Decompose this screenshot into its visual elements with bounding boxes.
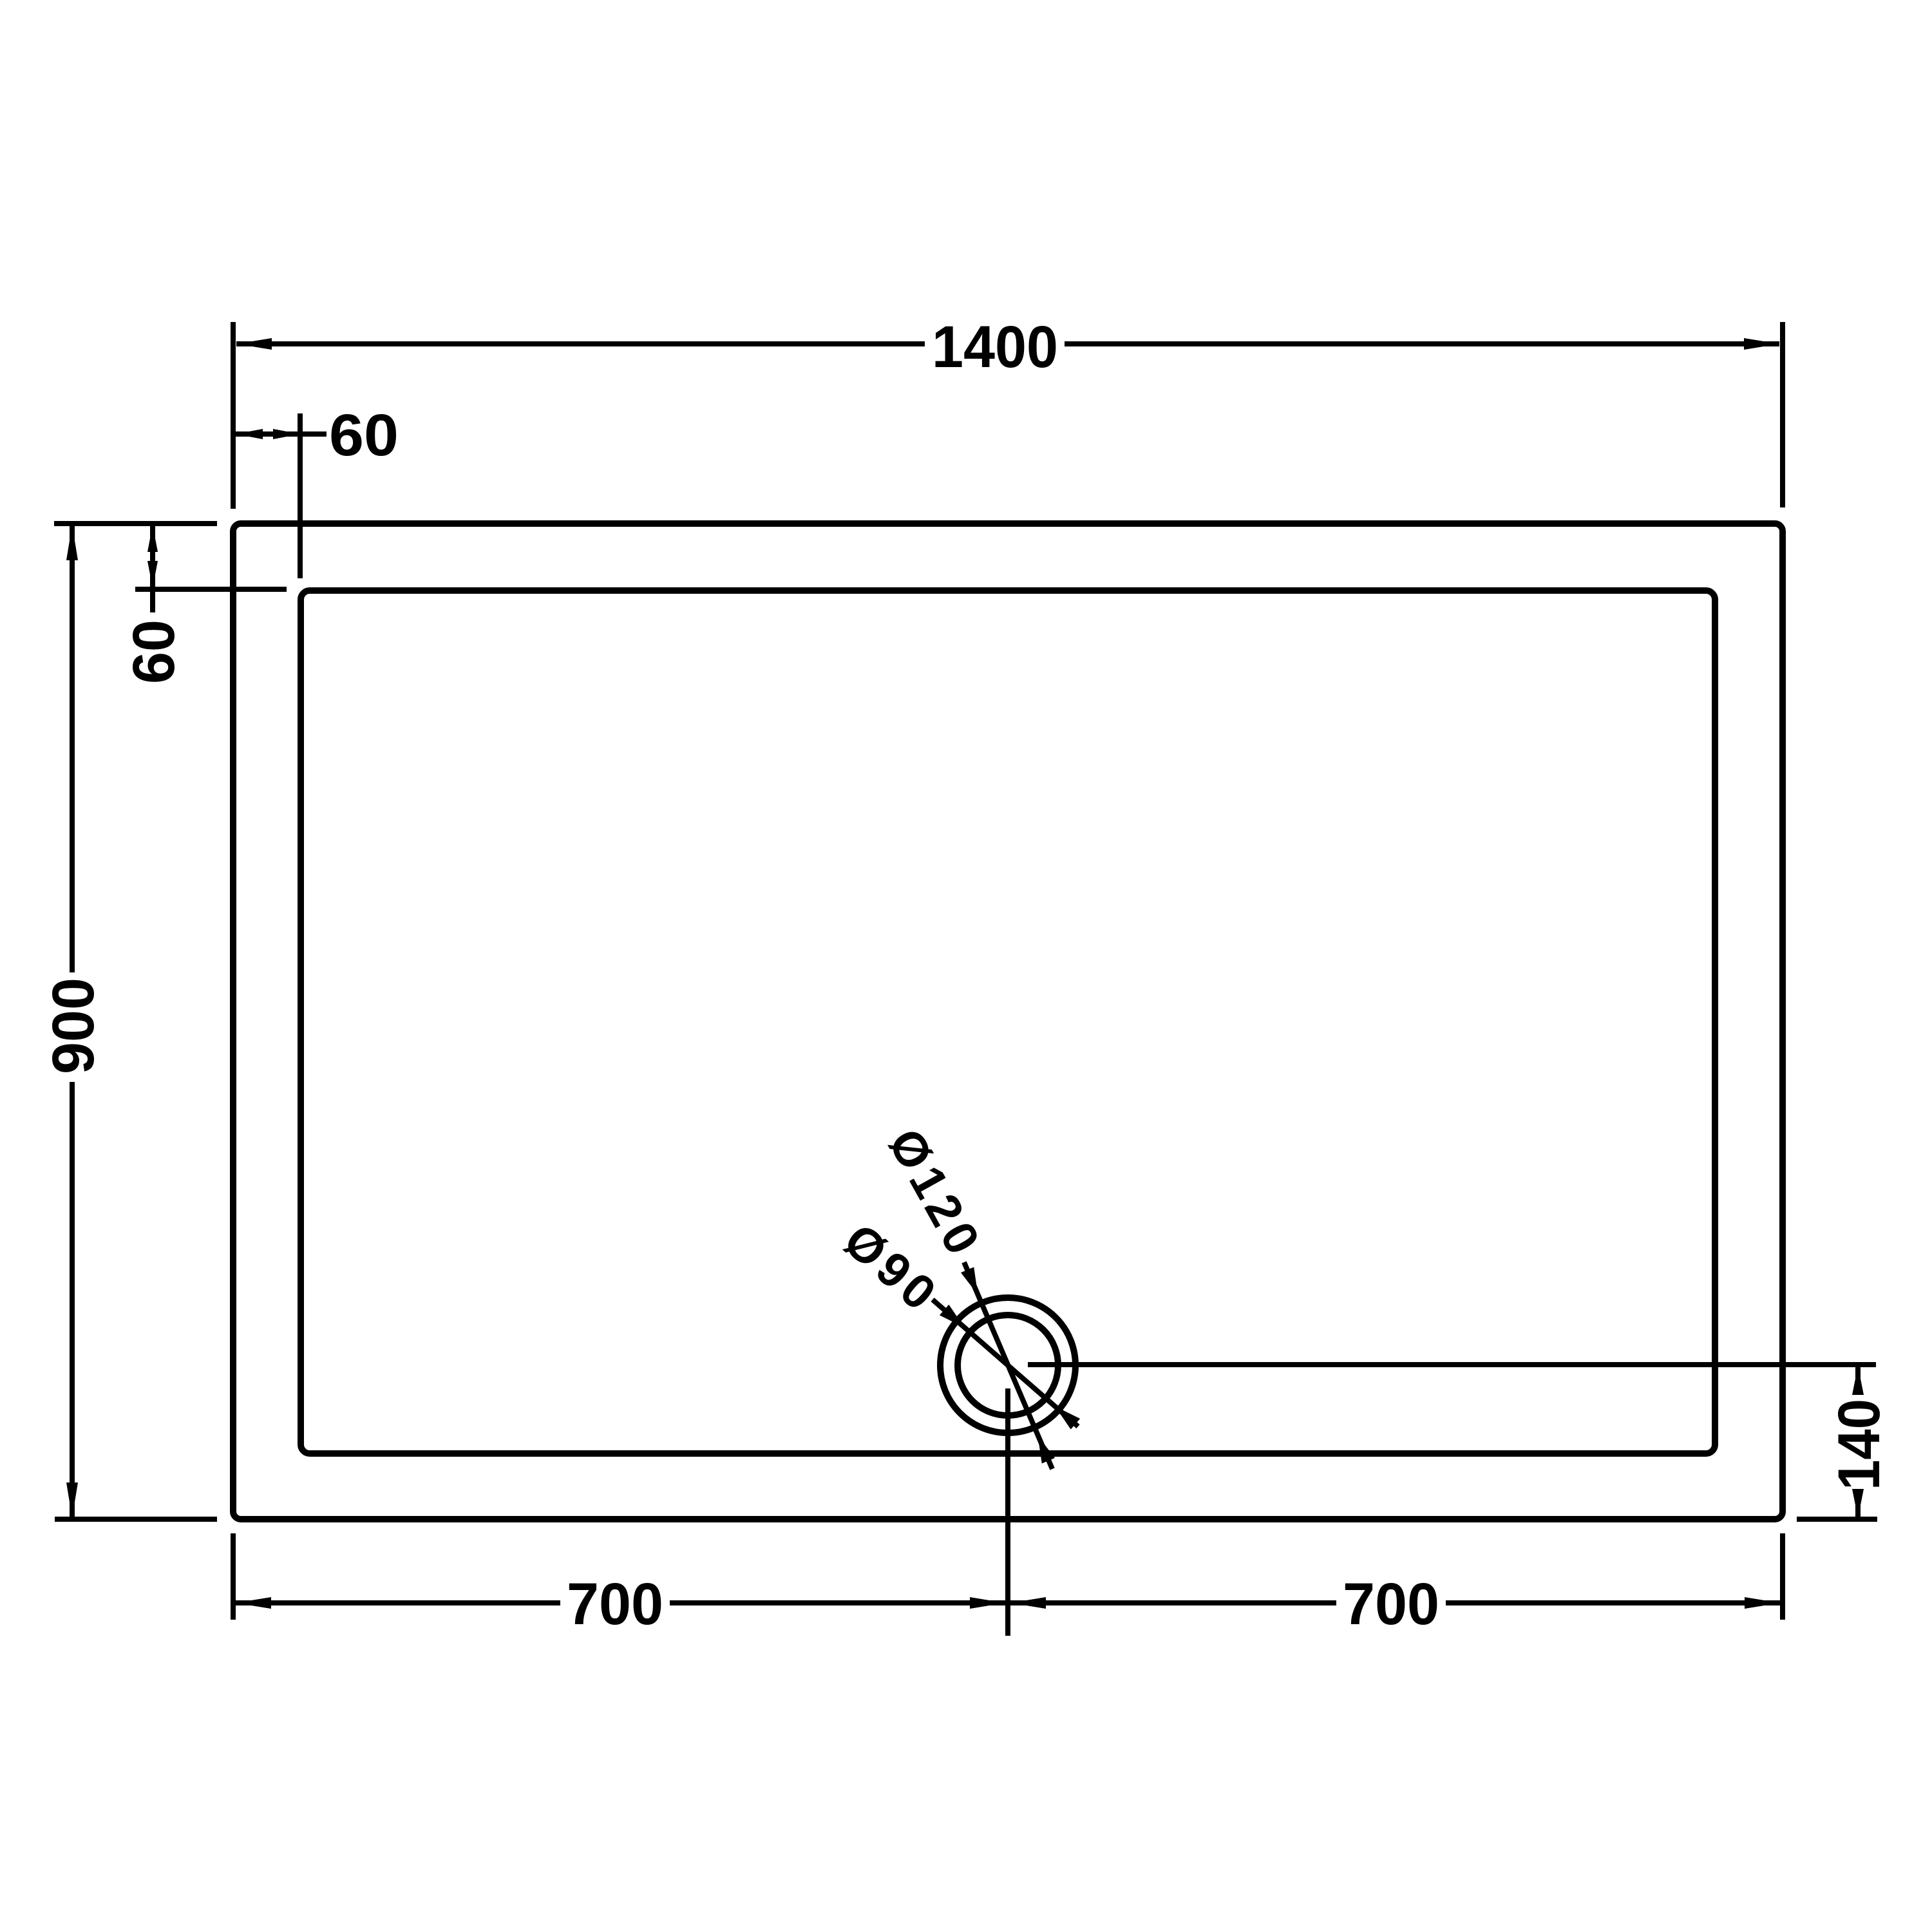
svg-text:1400: 1400: [932, 314, 1058, 380]
svg-text:700: 700: [1343, 1571, 1439, 1637]
svg-text:60: 60: [329, 402, 399, 468]
svg-text:140: 140: [1826, 1399, 1892, 1490]
svg-text:700: 700: [567, 1571, 663, 1637]
svg-text:60: 60: [121, 620, 187, 684]
svg-text:900: 900: [41, 978, 106, 1074]
